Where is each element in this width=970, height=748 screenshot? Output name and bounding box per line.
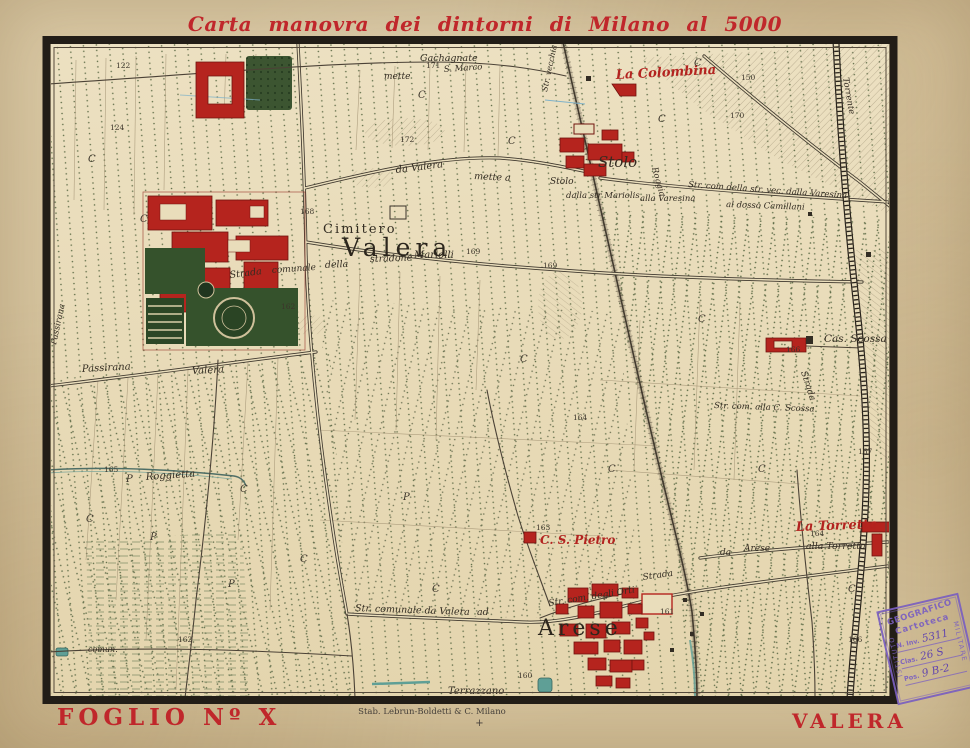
elevation-number: 166 xyxy=(786,345,801,354)
crop-code: C xyxy=(520,354,528,365)
road-stradone: stradone xyxy=(370,253,413,265)
folio-number: FOGLIO Nº X xyxy=(57,704,281,731)
publisher-text: Stab. Lebrun-Boldetti & C. Milano xyxy=(332,708,532,718)
label-arese: Arese xyxy=(537,616,622,641)
label-cas-scossa: Cas. Scossa xyxy=(824,333,887,345)
crop-code: C xyxy=(140,214,148,225)
crop-code: P xyxy=(402,492,410,503)
elevation-number: 162 xyxy=(178,635,193,644)
road-alla-varesina: alla Varesina xyxy=(640,194,695,204)
elevation-number: 166 xyxy=(848,635,863,644)
road-ad: ad xyxy=(477,607,489,618)
crop-code: P xyxy=(125,474,133,485)
label-la-torretta: La Torretta xyxy=(795,517,878,535)
crop-code: P xyxy=(227,579,235,590)
road-dalla-str-mariolis: dalla str Mariolis xyxy=(566,191,640,201)
crop-code: C xyxy=(658,114,666,125)
elevation-number: 171 xyxy=(426,61,440,70)
label-alla-torretta: alla Torretta xyxy=(806,541,866,552)
stamp-inv-value: 5311 xyxy=(921,627,950,645)
stamp-inv-label: N. Inv. xyxy=(896,637,921,650)
label-cimitero: Cimitero xyxy=(323,222,397,237)
label-da: da xyxy=(720,548,731,558)
elevation-number: 164 xyxy=(573,413,588,422)
stamp-clas-value: 26 S xyxy=(919,646,945,663)
crop-code: C xyxy=(240,484,248,495)
elevation-number: 170 xyxy=(730,111,745,120)
crop-code: C xyxy=(608,464,616,475)
elevation-number: 168 xyxy=(300,207,315,216)
crop-code: C xyxy=(88,154,96,165)
crop-code: C xyxy=(698,314,706,325)
elevation-number: 161 xyxy=(660,607,674,616)
crop-code: C xyxy=(694,58,702,69)
elevation-number: 172 xyxy=(400,135,415,144)
crop-code: C xyxy=(300,554,308,565)
label-stolo: Stolo xyxy=(598,153,637,171)
label-terrazzano: Terrazzano xyxy=(448,686,504,697)
elevation-number: 150 xyxy=(741,73,756,82)
stamp-position-row: Pos. 9 B-2 xyxy=(903,658,968,686)
stamp-clas-label: Clas. xyxy=(899,655,918,667)
elevation-number: 169 xyxy=(543,261,558,270)
map-canvas: Valera Cimitero La Colombina Stolo Stolo… xyxy=(0,0,970,748)
crop-code: P xyxy=(149,532,157,543)
elevation-number: 163 xyxy=(536,523,551,532)
label-valera-road: Valera xyxy=(192,364,225,377)
crop-code: C xyxy=(86,514,94,525)
elevation-number: 165 xyxy=(104,465,119,474)
sheet-name: VALERA xyxy=(792,709,907,733)
crop-code: C xyxy=(758,464,766,475)
elevation-number: 164 xyxy=(810,529,825,538)
stamp-pos-label: Pos. xyxy=(903,672,920,683)
road-mariolli: Mariolli xyxy=(413,250,454,261)
publisher-imprint: Stab. Lebrun-Boldetti & C. Milano + xyxy=(332,708,532,729)
label-stolo-small: Stolo xyxy=(550,177,574,187)
crop-code: C xyxy=(848,584,856,595)
road-mette-a: mette a xyxy=(474,171,511,184)
label-arese-small: Arese xyxy=(743,544,770,554)
road-comun: comun. xyxy=(88,645,118,654)
crop-code: C xyxy=(508,136,516,147)
crop-code: C xyxy=(418,90,426,101)
road-della: della xyxy=(325,259,349,271)
label-c-s-pietro: C. S. Pietro xyxy=(540,533,615,547)
registration-mark: + xyxy=(427,718,532,730)
elevation-number: 169 xyxy=(466,247,481,256)
stamp-class-row: Clas. 26 S xyxy=(899,642,964,670)
stamp-pos-value: 9 B-2 xyxy=(921,662,951,680)
stamp-org-left: ISTITUTO xyxy=(887,634,905,679)
elevation-number: 160 xyxy=(518,671,533,680)
elevation-number: 122 xyxy=(116,61,131,70)
road-mette: mette xyxy=(384,72,410,82)
elevation-number: 162 xyxy=(281,302,296,311)
elevation-number: 167 xyxy=(858,447,873,456)
crop-code: C xyxy=(432,584,440,595)
elevation-number: 124 xyxy=(110,123,125,132)
map-sheet: { "title": "Carta manovra dei dintorni d… xyxy=(0,0,970,748)
